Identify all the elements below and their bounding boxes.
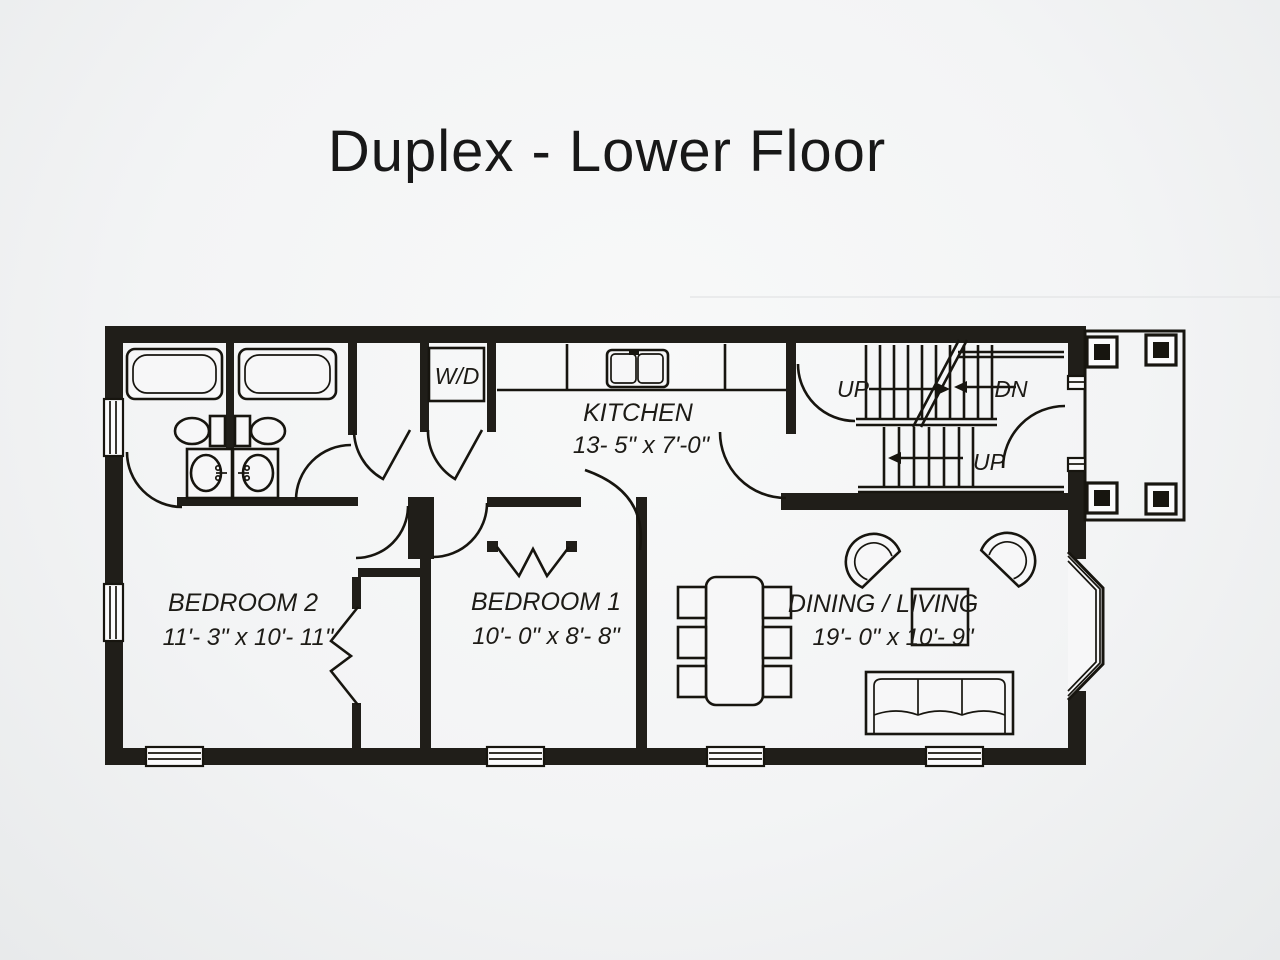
armchair-icon [980, 521, 1047, 588]
room-name-dining-living: DINING / LIVING [788, 590, 978, 618]
chair-icon [763, 587, 791, 618]
door-swing-icon [720, 432, 786, 498]
stairs-up-label: UP [837, 376, 870, 402]
room-dims-bedroom2: 11'- 3" x 10'- 11" [163, 624, 335, 651]
bathtub-icon [127, 349, 222, 399]
bathtub-icon [239, 349, 336, 399]
chair-icon [678, 587, 706, 618]
window-icon [487, 747, 544, 766]
kitchen-sink-icon [607, 349, 668, 387]
kitchen-counter [497, 344, 786, 390]
toilet-icon [235, 416, 285, 446]
chair-icon [763, 666, 791, 697]
room-dims-dining-living: 19'- 0" x 10'- 9" [813, 624, 975, 651]
room-name-kitchen: KITCHEN [583, 399, 694, 427]
porch-post-icon [1146, 484, 1176, 514]
sink-icon [187, 449, 232, 498]
door-swing-icon [433, 503, 487, 557]
chair-icon [678, 627, 706, 658]
toilet-icon [175, 416, 225, 446]
window-icon [104, 584, 123, 641]
door-jamb [1068, 376, 1085, 389]
door-swing-icon [1003, 406, 1065, 468]
window-icon [707, 747, 764, 766]
window-icon [146, 747, 203, 766]
porch-post-icon [1087, 483, 1117, 513]
dining-table-icon [678, 577, 791, 705]
door-jamb [1068, 458, 1085, 471]
sofa-icon [866, 672, 1013, 734]
room-name-bedroom1: BEDROOM 1 [471, 588, 621, 616]
entry-porch [1068, 331, 1184, 520]
slide: Duplex - Lower Floor [0, 0, 1280, 960]
stairs-down-label: DN [994, 376, 1028, 402]
chair-icon [678, 666, 706, 697]
bifold-door-icon [497, 547, 569, 576]
stairs-up-lower-label: UP [973, 449, 1006, 475]
room-name-bedroom2: BEDROOM 2 [168, 589, 318, 617]
door-swing-icon [428, 430, 482, 479]
room-dims-bedroom1: 10'- 0" x 8'- 8" [472, 623, 621, 650]
bay-window-icon [1068, 552, 1103, 700]
room-labels: BEDROOM 2 11'- 3" x 10'- 11" BEDROOM 1 1… [163, 399, 979, 651]
door-swing-icon [356, 506, 408, 558]
floor-plan: W/D [0, 0, 1280, 960]
laundry-label: W/D [435, 363, 480, 389]
armchair-icon [834, 522, 901, 589]
laundry-closet: W/D [429, 348, 484, 401]
sink-icon [233, 449, 278, 498]
porch-post-icon [1087, 337, 1117, 367]
door-swing-icon [354, 430, 410, 479]
door-swing-icon [296, 445, 351, 500]
window-icon [104, 399, 123, 456]
room-dims-kitchen: 13- 5" x 7'-0" [573, 432, 711, 459]
window-icon [926, 747, 983, 766]
door-swing-icon [585, 470, 641, 550]
bifold-door-icon [331, 607, 358, 705]
door-swing-icon [127, 452, 182, 507]
chair-icon [763, 627, 791, 658]
porch-post-icon [1146, 335, 1176, 365]
